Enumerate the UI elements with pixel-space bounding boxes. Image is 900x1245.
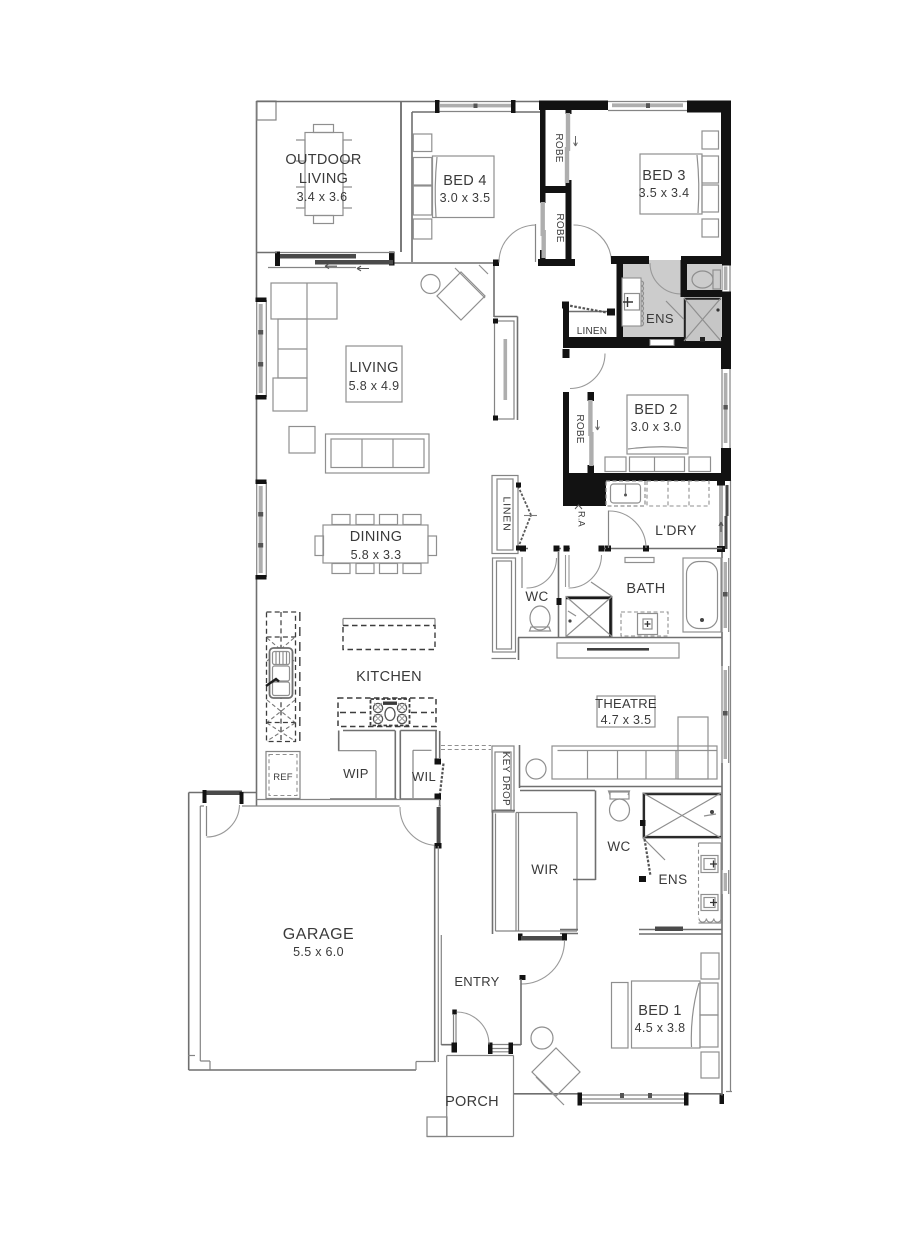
svg-text:5.5 x 6.0: 5.5 x 6.0 (293, 945, 344, 959)
svg-text:WC: WC (525, 589, 548, 604)
svg-text:LIVING: LIVING (349, 360, 398, 376)
svg-text:ROBE: ROBE (554, 213, 565, 242)
svg-text:WIP: WIP (343, 766, 369, 781)
svg-text:3.5 x 3.4: 3.5 x 3.4 (639, 186, 690, 200)
svg-text:BED 4: BED 4 (443, 173, 486, 189)
svg-text:4.5 x 3.8: 4.5 x 3.8 (635, 1021, 686, 1035)
svg-text:3.0 x 3.5: 3.0 x 3.5 (440, 191, 491, 205)
svg-text:4.7 x 3.5: 4.7 x 3.5 (601, 713, 652, 727)
svg-text:R.A: R.A (577, 511, 587, 527)
svg-text:LINEN: LINEN (501, 497, 513, 532)
svg-text:THEATRE: THEATRE (595, 696, 657, 711)
svg-text:LIVING: LIVING (299, 171, 348, 187)
svg-text:5.8 x 4.9: 5.8 x 4.9 (349, 379, 400, 393)
svg-text:LINEN: LINEN (577, 326, 607, 337)
svg-text:GARAGE: GARAGE (283, 926, 354, 943)
svg-text:ROBE: ROBE (574, 414, 585, 443)
svg-text:REF: REF (273, 772, 293, 783)
svg-text:WC: WC (607, 839, 630, 854)
svg-text:BED 1: BED 1 (638, 1003, 681, 1019)
svg-text:KITCHEN: KITCHEN (356, 669, 422, 685)
svg-text:3.4 x 3.6: 3.4 x 3.6 (297, 190, 348, 204)
svg-text:ENS: ENS (659, 872, 688, 887)
svg-text:ENS: ENS (646, 311, 674, 326)
svg-text:KEY DROP: KEY DROP (500, 752, 511, 806)
svg-text:BATH: BATH (626, 581, 665, 597)
svg-text:5.8 x 3.3: 5.8 x 3.3 (351, 548, 402, 562)
svg-text:L'DRY: L'DRY (655, 522, 697, 538)
svg-text:ENTRY: ENTRY (454, 974, 499, 989)
svg-text:DINING: DINING (350, 529, 403, 545)
svg-text:WIL: WIL (412, 769, 436, 784)
svg-text:BED 2: BED 2 (634, 402, 677, 418)
svg-text:WIR: WIR (531, 862, 558, 877)
svg-text:BED 3: BED 3 (642, 168, 685, 184)
svg-text:OUTDOOR: OUTDOOR (285, 152, 361, 168)
svg-text:3.0 x 3.0: 3.0 x 3.0 (631, 420, 682, 434)
svg-text:ROBE: ROBE (553, 133, 564, 162)
svg-text:PORCH: PORCH (445, 1094, 499, 1110)
